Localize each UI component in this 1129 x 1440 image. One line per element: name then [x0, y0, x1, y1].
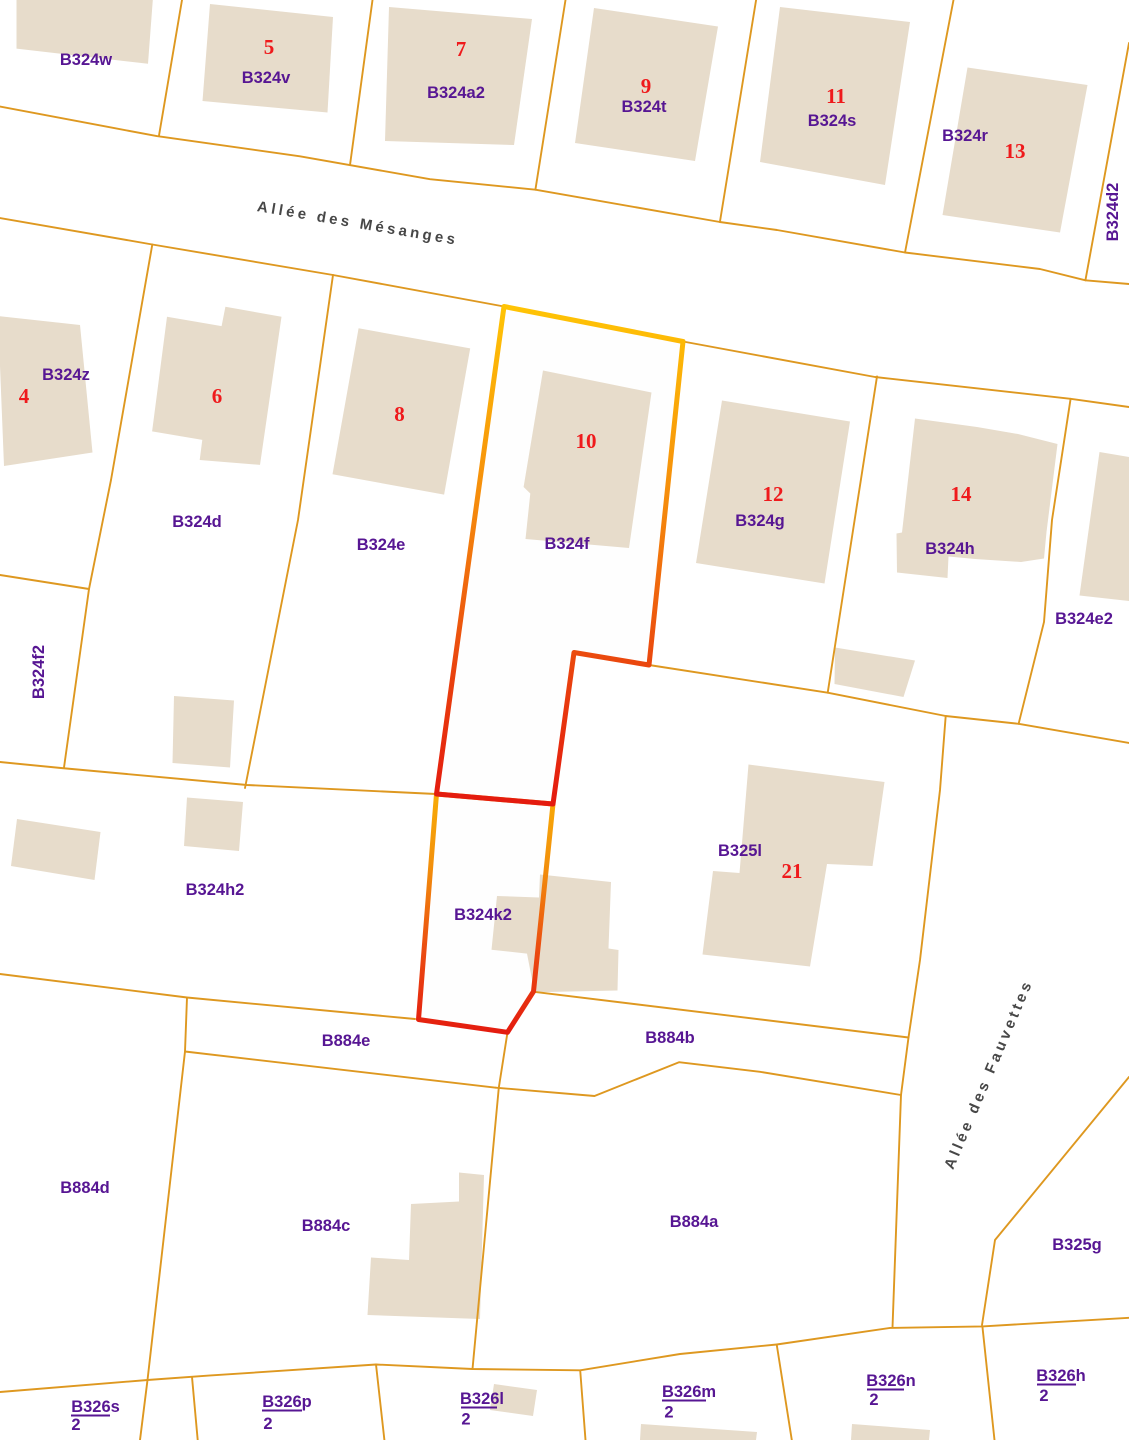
- svg-text:B325l: B325l: [718, 842, 762, 860]
- svg-text:B324e2: B324e2: [1055, 610, 1113, 628]
- svg-text:B324t: B324t: [622, 98, 667, 116]
- svg-text:B884e: B884e: [322, 1032, 371, 1050]
- svg-text:B324d2: B324d2: [1104, 183, 1122, 242]
- svg-text:B884c: B884c: [302, 1217, 351, 1235]
- svg-text:B884a: B884a: [670, 1213, 719, 1231]
- svg-text:B324f2: B324f2: [30, 645, 48, 699]
- svg-text:2: 2: [869, 1391, 878, 1409]
- svg-text:B324a2: B324a2: [427, 84, 485, 102]
- svg-text:2: 2: [461, 1411, 470, 1429]
- svg-text:2: 2: [263, 1415, 272, 1433]
- svg-text:B884b: B884b: [645, 1029, 695, 1047]
- svg-text:B324z: B324z: [42, 366, 90, 384]
- svg-text:8: 8: [394, 402, 405, 426]
- svg-text:6: 6: [212, 384, 223, 408]
- svg-text:10: 10: [576, 429, 597, 453]
- svg-text:13: 13: [1005, 139, 1026, 163]
- svg-text:B324d: B324d: [172, 513, 222, 531]
- svg-text:B324r: B324r: [942, 127, 988, 145]
- svg-text:B326m: B326m: [662, 1383, 716, 1401]
- svg-text:9: 9: [641, 74, 652, 98]
- svg-text:B324h2: B324h2: [186, 881, 245, 899]
- svg-text:B326p: B326p: [262, 1393, 312, 1411]
- svg-text:B326n: B326n: [866, 1372, 916, 1390]
- svg-text:B324w: B324w: [60, 51, 112, 69]
- svg-text:14: 14: [951, 482, 973, 506]
- svg-text:4: 4: [19, 384, 30, 408]
- svg-text:B884d: B884d: [60, 1179, 110, 1197]
- svg-text:7: 7: [456, 37, 467, 61]
- svg-text:B324h: B324h: [925, 540, 975, 558]
- svg-text:B324v: B324v: [242, 69, 291, 87]
- svg-text:21: 21: [782, 859, 803, 883]
- svg-text:B324g: B324g: [735, 512, 785, 530]
- svg-text:B326l: B326l: [460, 1390, 504, 1408]
- svg-text:11: 11: [826, 84, 846, 108]
- svg-text:B324s: B324s: [808, 112, 857, 130]
- svg-text:5: 5: [264, 35, 275, 59]
- svg-text:2: 2: [71, 1416, 80, 1434]
- svg-text:B324f: B324f: [545, 535, 590, 553]
- svg-text:B326h: B326h: [1036, 1367, 1086, 1385]
- svg-text:2: 2: [664, 1404, 673, 1422]
- svg-text:12: 12: [763, 482, 784, 506]
- svg-text:B326s: B326s: [71, 1398, 120, 1416]
- svg-text:B325g: B325g: [1052, 1236, 1102, 1254]
- svg-text:B324k2: B324k2: [454, 906, 512, 924]
- svg-text:B324e: B324e: [357, 536, 406, 554]
- svg-text:2: 2: [1039, 1387, 1048, 1405]
